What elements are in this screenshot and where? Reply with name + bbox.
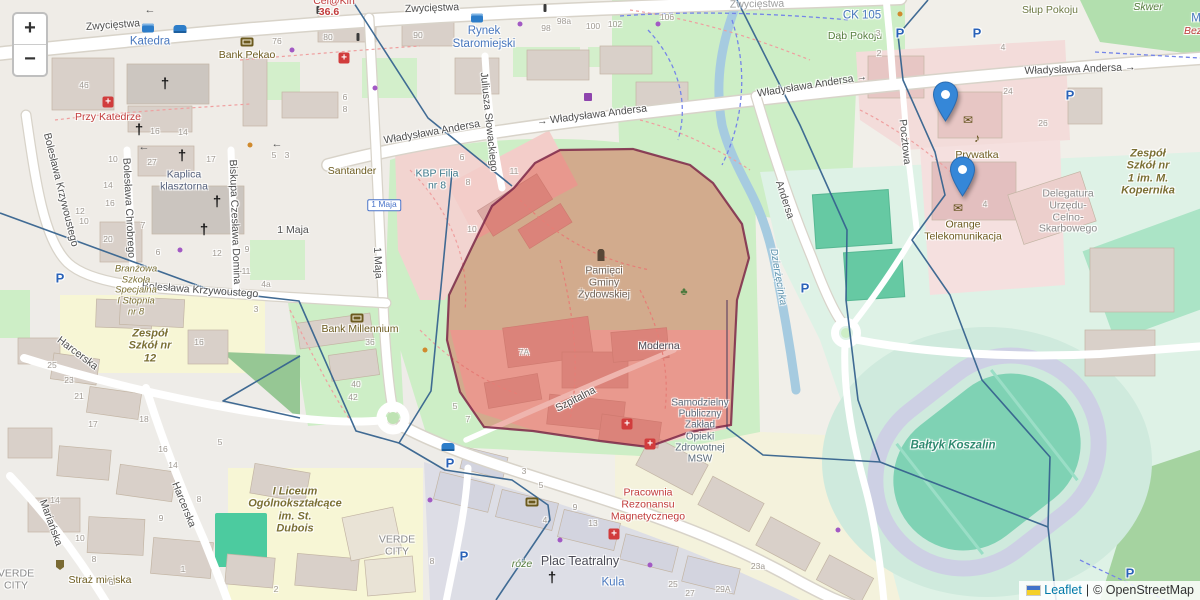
map-viewport[interactable]: + − Leaflet | © OpenStreetMap Zwycięstwa…	[0, 0, 1200, 600]
zoom-out-button[interactable]: −	[14, 45, 46, 75]
zoom-in-button[interactable]: +	[14, 14, 46, 44]
attribution-separator: |	[1086, 583, 1089, 597]
osm-copyright: © OpenStreetMap	[1093, 583, 1194, 597]
map-marker-2[interactable]	[949, 156, 976, 197]
map-marker-1[interactable]	[932, 81, 959, 122]
zoom-control: + −	[12, 12, 48, 77]
leaflet-link[interactable]: Leaflet	[1044, 583, 1082, 597]
ukraine-flag-icon	[1027, 586, 1040, 595]
attribution-bar: Leaflet | © OpenStreetMap	[1019, 581, 1200, 600]
map-tiles-layer	[0, 0, 1200, 600]
